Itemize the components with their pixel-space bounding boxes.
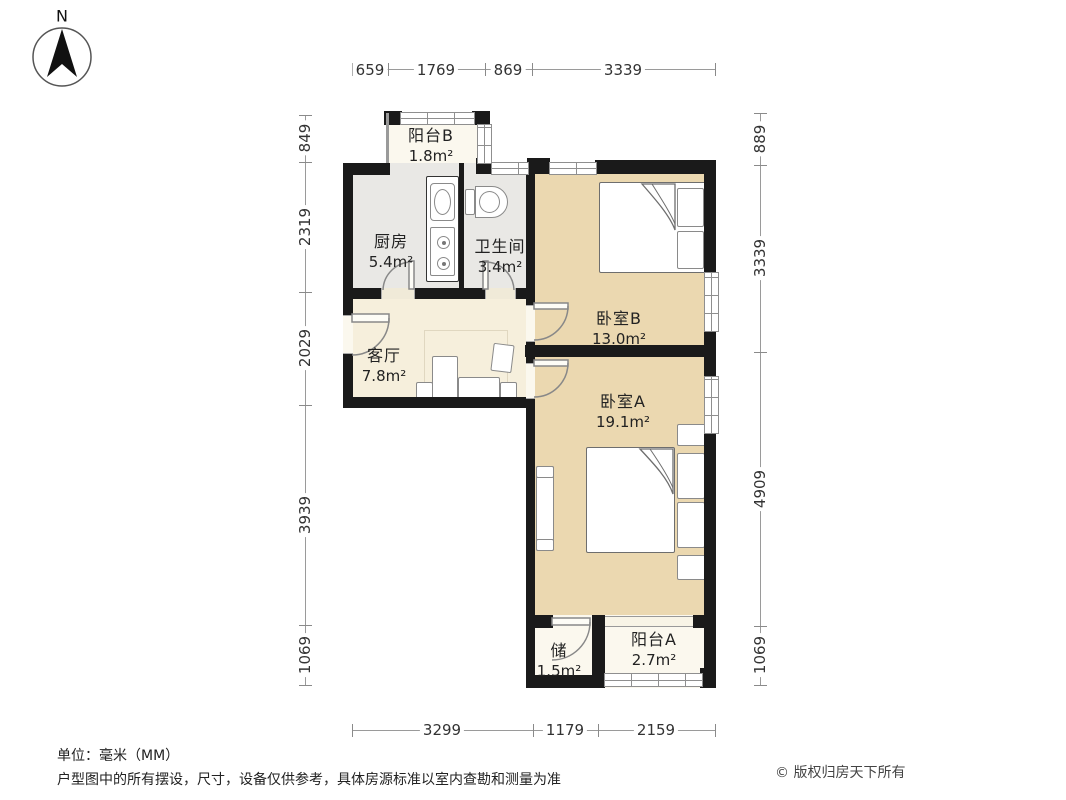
bed-a-nightstand xyxy=(677,424,706,446)
bed-a-mattress xyxy=(586,447,675,553)
wall xyxy=(352,288,381,299)
dimension-line-left xyxy=(305,115,306,685)
toilet-seat xyxy=(479,191,500,213)
dimension-line-right xyxy=(760,113,761,685)
bathroom-window xyxy=(491,162,529,175)
dim-top-2: 869 xyxy=(491,61,526,79)
wall xyxy=(526,397,535,618)
wall xyxy=(413,288,459,299)
dim-left-2: 2029 xyxy=(296,326,314,370)
dim-tick xyxy=(352,724,353,737)
bedroom-b-top-window xyxy=(549,162,597,175)
bed-a-nightstand xyxy=(677,555,706,580)
toilet-tank xyxy=(465,189,475,215)
dim-tick xyxy=(598,724,599,737)
balcony-a-opening xyxy=(605,616,693,627)
wardrobe-shelf xyxy=(536,539,554,551)
dim-tick xyxy=(754,165,767,166)
dim-top-0: 659 xyxy=(353,61,388,79)
dim-tick xyxy=(715,63,716,76)
room-label-kitchen: 厨房 5.4m² xyxy=(369,232,413,272)
dim-left-0: 849 xyxy=(296,121,314,156)
unit-note: 单位：毫米（MM） xyxy=(57,745,179,765)
dim-right-0: 889 xyxy=(751,122,769,157)
room-label-bedroom-a: 卧室A 19.1m² xyxy=(596,392,650,432)
room-label-balcony-a: 阳台A 2.7m² xyxy=(631,630,677,670)
room-label-storage: 储 1.5m² xyxy=(537,641,581,681)
bedroom-a-right-window xyxy=(704,376,719,434)
balcony-b-side-wall xyxy=(386,113,389,163)
wall xyxy=(459,163,464,288)
room-label-living-room: 客厅 7.8m² xyxy=(362,346,406,386)
entry-door-opening xyxy=(343,315,353,354)
dim-tick xyxy=(299,685,312,686)
dim-tick xyxy=(754,685,767,686)
north-arrow-icon xyxy=(47,29,77,77)
dim-right-1: 3339 xyxy=(751,236,769,280)
wall xyxy=(595,160,716,174)
dim-tick xyxy=(485,63,486,76)
kitchen-sink-basin xyxy=(434,189,451,215)
wall xyxy=(704,432,716,688)
wardrobe-shelf xyxy=(536,466,554,478)
dim-tick xyxy=(299,162,312,163)
bed-a-pillow xyxy=(677,453,705,499)
disclaimer-text: 户型图中的所有摆设，尺寸，设备仅供参考，具体房源标准以室内查勘和测量为准 xyxy=(57,769,561,789)
dim-tick xyxy=(299,405,312,406)
dim-right-3: 1069 xyxy=(751,633,769,677)
dim-tick xyxy=(299,292,312,293)
dim-bottom-1: 1179 xyxy=(543,721,587,739)
copyright-text: © 版权归房天下所有 xyxy=(775,762,905,782)
balcony-b-window xyxy=(400,112,475,125)
compass-north-label: N xyxy=(54,7,70,26)
dim-bottom-2: 2159 xyxy=(634,721,678,739)
dim-tick xyxy=(754,113,767,114)
dim-left-3: 3939 xyxy=(296,493,314,537)
stove-burner-dot xyxy=(442,241,446,245)
desk xyxy=(490,343,514,373)
dim-left-1: 2319 xyxy=(296,205,314,249)
dim-right-2: 4909 xyxy=(751,467,769,511)
dim-tick xyxy=(715,724,716,737)
dimension-line-top xyxy=(352,69,715,70)
wall xyxy=(704,160,716,272)
floor-plan-page: N 阳台B 1.8m² 厨房 5.4m² 卫生间 3.4m² 卧室B 13.0m… xyxy=(0,0,1066,800)
kitchen-door-opening xyxy=(381,288,415,299)
wall xyxy=(693,615,716,628)
bedroom-b-door-opening xyxy=(526,305,535,342)
dim-tick xyxy=(754,626,767,627)
stove-burner-dot xyxy=(442,262,446,266)
dim-tick xyxy=(532,63,533,76)
dim-tick xyxy=(754,352,767,353)
bedroom-b-right-window xyxy=(704,272,719,332)
room-label-bathroom: 卫生间 3.4m² xyxy=(474,237,525,277)
wall xyxy=(526,163,535,305)
dim-top-3: 3339 xyxy=(601,61,645,79)
room-label-balcony-b: 阳台B 1.8m² xyxy=(408,126,454,166)
bedroom-a-door-opening xyxy=(526,363,535,399)
room-label-bedroom-b: 卧室B 13.0m² xyxy=(592,309,646,349)
wall xyxy=(343,397,532,408)
bathroom-door-opening xyxy=(485,288,516,299)
bed-a-pillow xyxy=(677,502,705,548)
bed-b-pillow xyxy=(677,188,704,227)
compass xyxy=(33,28,91,86)
sofa-back xyxy=(432,356,458,402)
dim-tick xyxy=(533,724,534,737)
dim-bottom-0: 3299 xyxy=(420,721,464,739)
dim-tick xyxy=(299,625,312,626)
balcony-b-side-window xyxy=(477,124,492,164)
bed-b-pillow xyxy=(677,231,704,269)
dim-top-1: 1769 xyxy=(414,61,458,79)
dim-tick xyxy=(299,115,312,116)
balcony-a-window xyxy=(604,673,703,687)
dim-tick xyxy=(388,63,389,76)
dim-left-4: 1069 xyxy=(296,633,314,677)
storage-door-opening xyxy=(553,615,592,628)
wall xyxy=(459,288,485,299)
